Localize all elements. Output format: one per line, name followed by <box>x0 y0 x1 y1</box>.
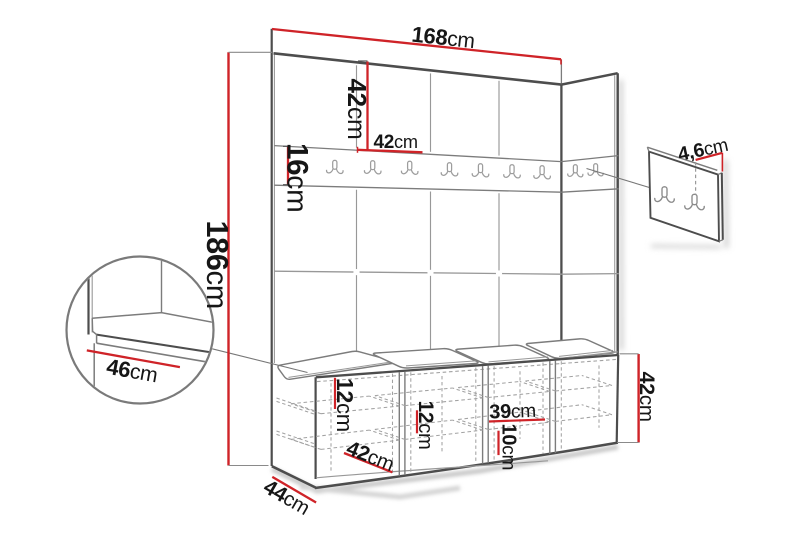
svg-text:42cm: 42cm <box>342 79 372 140</box>
svg-text:12cm: 12cm <box>414 401 437 450</box>
svg-text:186cm: 186cm <box>200 221 234 309</box>
svg-text:12cm: 12cm <box>332 378 358 432</box>
svg-text:39cm: 39cm <box>489 400 536 424</box>
svg-text:16cm: 16cm <box>281 143 314 212</box>
svg-text:10cm: 10cm <box>498 424 520 471</box>
svg-text:42cm: 42cm <box>374 132 418 153</box>
svg-text:42cm: 42cm <box>635 372 659 422</box>
